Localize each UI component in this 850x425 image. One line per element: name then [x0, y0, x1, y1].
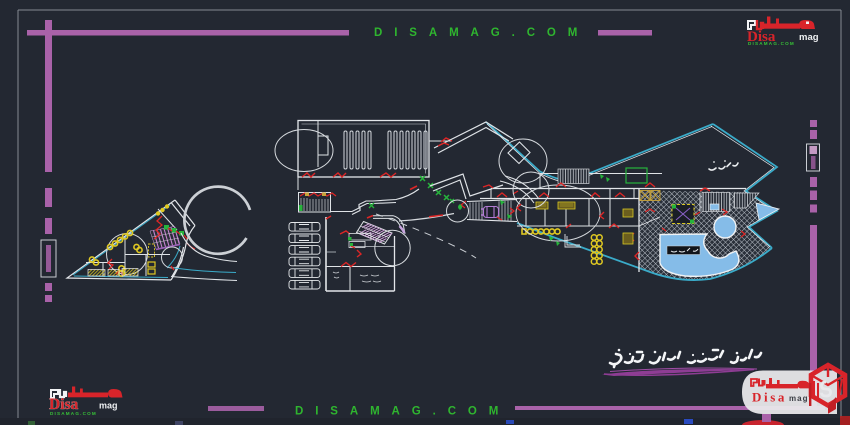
- svg-text:Disa: Disa: [752, 390, 787, 405]
- svg-text:mag: mag: [799, 32, 819, 43]
- svg-text:DISAMAG.COM: DISAMAG.COM: [50, 411, 97, 416]
- svg-text:DISAMAG.COM: DISAMAG.COM: [748, 41, 795, 46]
- svg-text:mag: mag: [789, 394, 808, 403]
- svg-text:mag: mag: [99, 401, 118, 411]
- svg-text:DISAMAG.COM: DISAMAG.COM: [374, 27, 589, 39]
- svg-text:DISAMAG.COM: DISAMAG.COM: [295, 406, 510, 418]
